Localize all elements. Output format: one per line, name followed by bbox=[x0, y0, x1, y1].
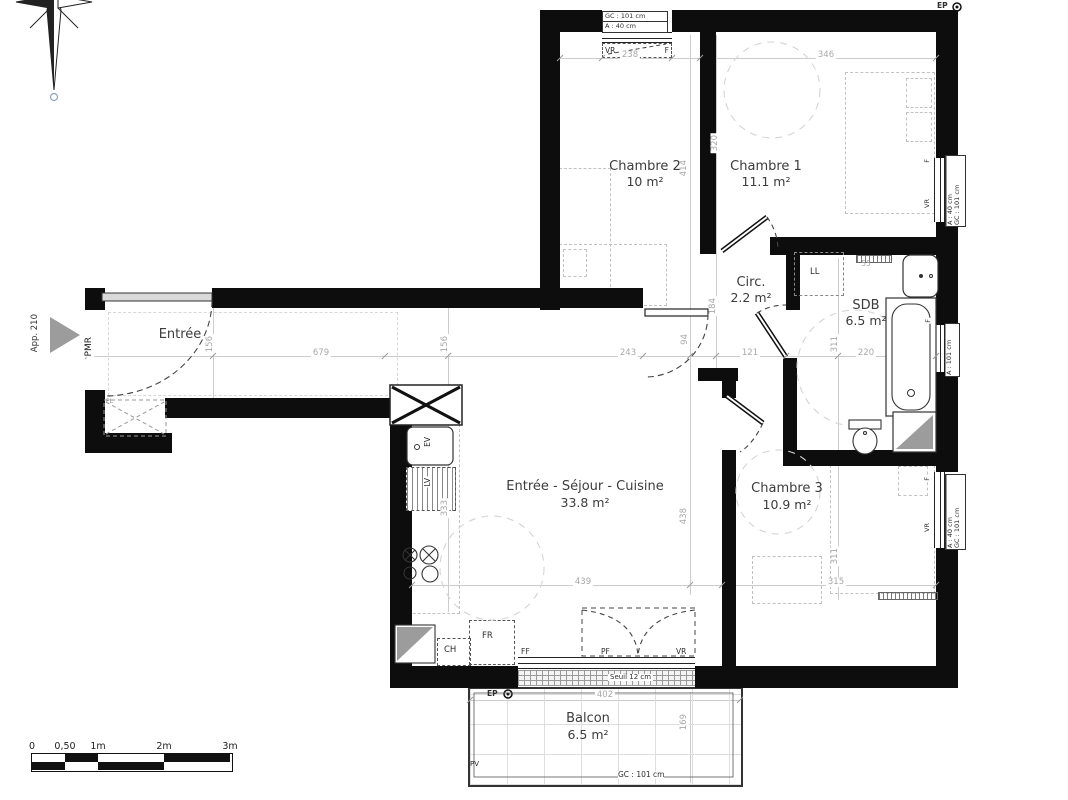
fridge-label: FR bbox=[482, 632, 493, 641]
ep-label-balcony: EP bbox=[487, 690, 498, 698]
room-area-circ: 2.2 m² bbox=[730, 291, 771, 305]
scale-bar-graphic bbox=[31, 753, 233, 772]
dim-402: 402 bbox=[595, 691, 615, 700]
pf-door-arc-left bbox=[582, 610, 638, 655]
room-area-chambre1: 11.1 m² bbox=[742, 175, 791, 189]
dim-121: 121 bbox=[740, 349, 760, 358]
pv-label: PV bbox=[470, 761, 479, 768]
pf-door-arc-right bbox=[638, 610, 695, 655]
window-label-box-sdb: A : 101 cm bbox=[945, 323, 960, 377]
room-label-sejour: Entrée - Séjour - Cuisine bbox=[506, 480, 663, 494]
room-label-sdb: SDB bbox=[852, 299, 879, 313]
toilet bbox=[849, 420, 881, 454]
pmr-label: PMR bbox=[85, 336, 94, 357]
window-label-box-ch3: A : 40 cm GC : 101 cm bbox=[945, 474, 966, 550]
vr-label: VR bbox=[676, 648, 686, 656]
room-label-balcon: Balcon bbox=[566, 712, 610, 726]
dim-184: 184 bbox=[709, 296, 718, 316]
room-area-chambre3: 10.9 m² bbox=[763, 498, 812, 512]
window-label-box-ch2: GC : 101 cm A : 40 cm bbox=[602, 11, 668, 33]
washing-machine-label: LL bbox=[810, 268, 819, 277]
cooktop bbox=[403, 546, 438, 582]
dim-311-ch3: 311 bbox=[831, 546, 840, 566]
bathtub bbox=[886, 298, 936, 416]
dim-315: 315 bbox=[826, 578, 846, 587]
ch1-door-arc bbox=[767, 217, 778, 248]
dim-220: 220 bbox=[856, 349, 876, 358]
ep-marker-balcony bbox=[504, 690, 512, 698]
dim-169: 169 bbox=[680, 712, 689, 732]
vr-label: VR bbox=[924, 522, 931, 533]
f-label: F bbox=[924, 158, 931, 164]
vr-label: VR bbox=[924, 198, 931, 209]
window-gc-label: GC : 101 cm bbox=[954, 156, 961, 226]
entry-arrow bbox=[50, 317, 80, 353]
room-area-sejour: 33.8 m² bbox=[561, 496, 610, 510]
sdb-door-arc bbox=[757, 305, 786, 313]
f-label: F bbox=[924, 476, 931, 482]
window-label-box-ch1: A : 40 cm GC : 101 cm bbox=[945, 155, 966, 227]
room-label-chambre1: Chambre 1 bbox=[730, 160, 802, 174]
ch1-turning-circle bbox=[724, 42, 820, 138]
dishwasher-label: LV bbox=[424, 477, 432, 488]
dim-679: 679 bbox=[311, 349, 331, 358]
dim-238: 238 bbox=[620, 51, 640, 60]
closet-pl bbox=[104, 400, 166, 436]
scale-2m: 2m bbox=[156, 741, 171, 752]
pf-label: PF bbox=[601, 648, 610, 656]
room-label-circ: Circ. bbox=[736, 276, 765, 290]
sink-label: EV bbox=[424, 436, 432, 448]
apartment-number-label: App. 210 bbox=[31, 313, 40, 353]
compass-icon bbox=[16, 0, 92, 101]
ep-label-top: EP bbox=[937, 2, 948, 10]
dim-156-sejour: 156 bbox=[441, 334, 450, 354]
ch3-door-arc bbox=[740, 423, 763, 452]
boiler-label: CH bbox=[444, 646, 456, 655]
window-gc-label: GC : 101 cm bbox=[954, 475, 961, 549]
scale-050: 0,50 bbox=[54, 741, 75, 752]
dim-ticks bbox=[85, 55, 939, 703]
scale-1m: 1m bbox=[90, 741, 105, 752]
scale-3m: 3m bbox=[222, 741, 237, 752]
dim-346: 346 bbox=[816, 51, 836, 60]
room-label-chambre2: Chambre 2 bbox=[609, 160, 681, 174]
entry-door-leaf bbox=[102, 293, 212, 301]
room-area-balcon: 6.5 m² bbox=[567, 728, 608, 742]
dim-55: 55 bbox=[859, 260, 873, 268]
room-label-chambre3: Chambre 3 bbox=[751, 482, 823, 496]
ch2-door-leaf bbox=[645, 309, 708, 316]
room-label-entree: Entrée bbox=[159, 328, 202, 342]
ep-marker-top bbox=[953, 3, 961, 11]
dim-156-entree: 156 bbox=[206, 334, 215, 354]
dim-438: 438 bbox=[680, 506, 689, 526]
balcony-gc-label: GC : 101 cm bbox=[618, 771, 664, 779]
window-a-label: A : 101 cm bbox=[946, 324, 953, 376]
window-a-label: A : 40 cm bbox=[603, 22, 667, 31]
floor-plan: GC : 101 cm A : 40 cm VR F A : 40 cm GC … bbox=[0, 0, 1068, 800]
f-label: F bbox=[925, 318, 932, 324]
entry-door-arc bbox=[104, 301, 212, 396]
dim-94: 94 bbox=[681, 332, 690, 347]
room-area-sdb: 6.5 m² bbox=[845, 314, 886, 328]
dim-320: 320 bbox=[711, 133, 720, 153]
ff-label: FF bbox=[521, 648, 530, 656]
dim-414: 414 bbox=[680, 158, 689, 178]
dim-333: 333 bbox=[441, 498, 450, 518]
ch2-door-arc bbox=[645, 314, 708, 377]
sejour-turning-circle bbox=[440, 516, 544, 620]
scale-0: 0 bbox=[29, 741, 35, 752]
closet-label: PL bbox=[106, 399, 113, 405]
room-area-chambre2: 10 m² bbox=[626, 175, 663, 189]
dim-243: 243 bbox=[618, 349, 638, 358]
dim-439: 439 bbox=[573, 578, 593, 587]
plan-linework bbox=[0, 0, 1068, 800]
window-gc-label: GC : 101 cm bbox=[603, 12, 667, 22]
dim-311-sdb: 311 bbox=[831, 334, 840, 354]
